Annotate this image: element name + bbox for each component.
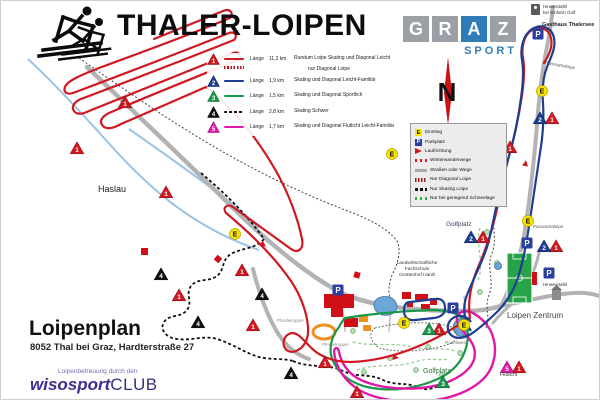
golf-entrance-icon (531, 4, 540, 15)
parkplatz-icon: P (415, 139, 422, 146)
trail2-length: 1,9 km (269, 78, 292, 84)
legend-schneelage: Nur bei genügend Schneelage (415, 194, 503, 203)
svg-text:2: 2 (469, 236, 473, 243)
svg-text:2: 2 (542, 245, 546, 252)
label-pferdekoppel-west: Pferdekoppel (277, 318, 304, 323)
label-golfplatz-sued: Golfplatz (423, 368, 451, 375)
label-panoramaloipe-nord: Panoramaloipe (545, 60, 576, 70)
svg-text:1: 1 (508, 146, 512, 153)
trail4-length: 2,8 km (269, 109, 292, 115)
label-fachschule-3: Grottenhof Hardt (399, 272, 435, 278)
trail4-triangle-icon: 4 (207, 106, 220, 118)
club-suffix: CLUB (110, 375, 157, 394)
trail4-desc: Skating Schwer (294, 109, 405, 115)
svg-text:3: 3 (427, 328, 431, 335)
loipenplan-poster: N E E E E E E P P P P P 1 1 1 1 1 1 1 (0, 0, 600, 400)
einstieg-icon: E (415, 129, 422, 136)
label-fachschule-1: Landwirtschaftliche (397, 260, 438, 266)
compass-north: N (438, 57, 457, 125)
trail1-line-sample (224, 58, 244, 60)
road-line-icon (415, 169, 427, 172)
haslau-marker (141, 248, 148, 255)
legend-parkplatz: P Parkplatz (415, 137, 503, 146)
length-label: Länge (250, 78, 267, 84)
length-label: Länge (250, 109, 267, 115)
graz-letter-z: Z (490, 16, 516, 42)
label-rodelwiese: Rodelwiese (445, 340, 469, 345)
legend-label: Nur Skating Loipe (430, 187, 468, 192)
legend-label: Parkplatz (425, 140, 445, 145)
trail3-desc: Skating und Diagonal Sportlich (294, 93, 405, 99)
svg-text:4: 4 (260, 293, 264, 300)
trail4-difficulty-markers: 4 4 4 4 (154, 268, 298, 379)
length-label: Länge (250, 93, 267, 99)
label-pferdekoppel-ost: Pferdekoppel (322, 342, 349, 347)
legend-nur-skating: Nur Skating Loipe (415, 184, 503, 193)
club-logo: wisosportCLUB (30, 375, 158, 395)
diagonal-hatch-icon (415, 178, 427, 182)
legend-label: Straßen oder Wege (430, 168, 472, 173)
svg-text:1: 1 (550, 117, 554, 124)
hinweistafel-house-icon (551, 285, 562, 300)
svg-text:1: 1 (123, 101, 127, 108)
footer-address: 8052 Thal bei Graz, Hardterstraße 27 (30, 342, 194, 353)
label-fachschule-2: Fachschule (405, 266, 430, 272)
trail5-desc: Skating und Diagonal Flutlicht Leicht-Fa… (294, 124, 405, 130)
svg-text:1: 1 (437, 328, 441, 335)
svg-text:P: P (546, 269, 552, 278)
trail1-diagonal-sample (224, 66, 244, 69)
label-hinweistafel-top-2: bei Einfahrt Golf (543, 10, 576, 15)
svg-text:1: 1 (240, 269, 244, 276)
svg-text:N: N (438, 77, 457, 107)
club-name: wisosport (30, 375, 110, 394)
footer-title: Loipenplan (29, 317, 141, 341)
club-caption: Loipenbetreuung durch den (58, 368, 138, 375)
legend-label: Laufrichtung (425, 149, 451, 154)
legend-strassen: Straßen oder Wege (415, 166, 503, 175)
label-hinweistafel-ost: Hinweistafel (543, 282, 567, 287)
trail3-triangle-icon: 3 (207, 90, 220, 102)
svg-text:E: E (390, 151, 395, 158)
legend-winterwanderwege: Winterwanderwege (415, 156, 503, 165)
graz-sport-subtitle: SPORT (447, 45, 517, 57)
svg-text:4: 4 (289, 372, 293, 379)
trail1-desc: Rundum Loipe Skating und Diagonal Leicht (294, 56, 405, 62)
svg-text:1: 1 (481, 236, 485, 243)
svg-text:P: P (524, 239, 530, 248)
trail-legend: 1 Länge 11,2 km Rundum Loipe Skating und… (207, 53, 405, 136)
svg-text:E: E (233, 231, 238, 238)
svg-text:4: 4 (159, 273, 163, 280)
trail-legend-row-2: 2 Länge 1,9 km Skating und Diagonal Leic… (207, 75, 405, 87)
direction-arrow-icon (415, 148, 422, 154)
svg-text:1: 1 (517, 366, 521, 373)
graz-letter-r: R (432, 16, 458, 42)
trail1-desc2: nur Diagonal Loipe (294, 66, 405, 72)
svg-text:E: E (526, 218, 531, 225)
trail5-triangle-icon: 5 (207, 121, 220, 133)
svg-text:P: P (335, 286, 341, 295)
horse-track (313, 315, 371, 339)
legend-label: Einstieg (425, 130, 442, 135)
trail-legend-row-1: 1 Länge 11,2 km Rundum Loipe Skating und… (207, 53, 405, 65)
trail2-triangle-icon: 2 (207, 75, 220, 87)
graz-letter-g: G (403, 16, 429, 42)
skating-blocks-icon (415, 188, 427, 191)
label-panoramaloipe-sued: Panoramaloipe (533, 224, 564, 229)
svg-text:1: 1 (177, 294, 181, 301)
red-dots-icon (415, 159, 427, 162)
svg-text:E: E (402, 320, 407, 327)
trail3-length: 1,5 km (269, 93, 292, 99)
legend-label: Nur bei genügend Schneelage (430, 196, 495, 201)
trail-legend-row-3: 3 Länge 1,5 km Skating und Diagonal Spor… (207, 90, 405, 102)
label-flutlicht: Flutlicht (500, 372, 518, 378)
svg-text:1: 1 (75, 147, 79, 154)
legend-einstieg: E Einstieg (415, 128, 503, 137)
legend-label: Nur Diagonal Loipe (430, 177, 471, 182)
legend-nur-diagonal: Nur Diagonal Loipe (415, 175, 503, 184)
legend-label: Winterwanderwege (430, 158, 471, 163)
trail-legend-row-4: 4 Länge 2,8 km Skating Schwer (207, 106, 405, 118)
svg-text:1: 1 (554, 245, 558, 252)
trail-legend-row-5: 5 Länge 1,7 km Skating und Diagonal Flut… (207, 121, 405, 133)
direction-mark (214, 255, 222, 263)
svg-text:P: P (450, 304, 456, 313)
label-loipen-zentrum: Loipen Zentrum (507, 311, 563, 320)
svg-text:1: 1 (355, 391, 359, 398)
trail1-length: 11,2 km (269, 56, 292, 62)
label-golfplatz-nord: Golfplatz (446, 221, 472, 228)
trail1-triangle-icon: 1 (207, 53, 220, 65)
length-label: Länge (250, 56, 267, 62)
svg-text:E: E (540, 88, 545, 95)
length-label: Länge (250, 124, 267, 130)
direction-mark (353, 271, 360, 278)
graz-letter-a: A (461, 16, 487, 42)
trail-legend-row-1b: nur Diagonal Loipe (207, 66, 405, 72)
symbol-legend: E Einstieg P Parkplatz Laufrichtung Wint… (410, 123, 507, 207)
trail2-desc: Skating und Diagonal Leicht-Familiär (294, 78, 405, 84)
svg-text:1: 1 (164, 191, 168, 198)
page-title: THALER-LOIPEN (117, 9, 367, 43)
svg-text:3: 3 (441, 381, 445, 388)
skier-logo-icon (29, 3, 119, 61)
green-dots-icon (415, 197, 427, 200)
trail3-line-sample (224, 95, 244, 97)
svg-text:2: 2 (538, 117, 542, 124)
graz-sport-logo: G R A Z (403, 16, 516, 42)
svg-text:4: 4 (196, 321, 200, 328)
svg-text:E: E (462, 322, 467, 329)
label-haslau: Haslau (98, 184, 126, 194)
label-gasthaus-thalersee: Gasthaus Thalersee (542, 22, 594, 28)
trail4-line-sample (224, 111, 244, 113)
svg-text:P: P (535, 30, 541, 39)
svg-text:1: 1 (323, 361, 327, 368)
trail5-line-sample (224, 126, 244, 128)
svg-text:1: 1 (251, 324, 255, 331)
legend-laufrichtung: Laufrichtung (415, 147, 503, 156)
trail5-length: 1,7 km (269, 124, 292, 130)
label-hinweistafel-top-1: Hinweistafel (543, 4, 567, 9)
trail2-line-sample (224, 80, 244, 82)
